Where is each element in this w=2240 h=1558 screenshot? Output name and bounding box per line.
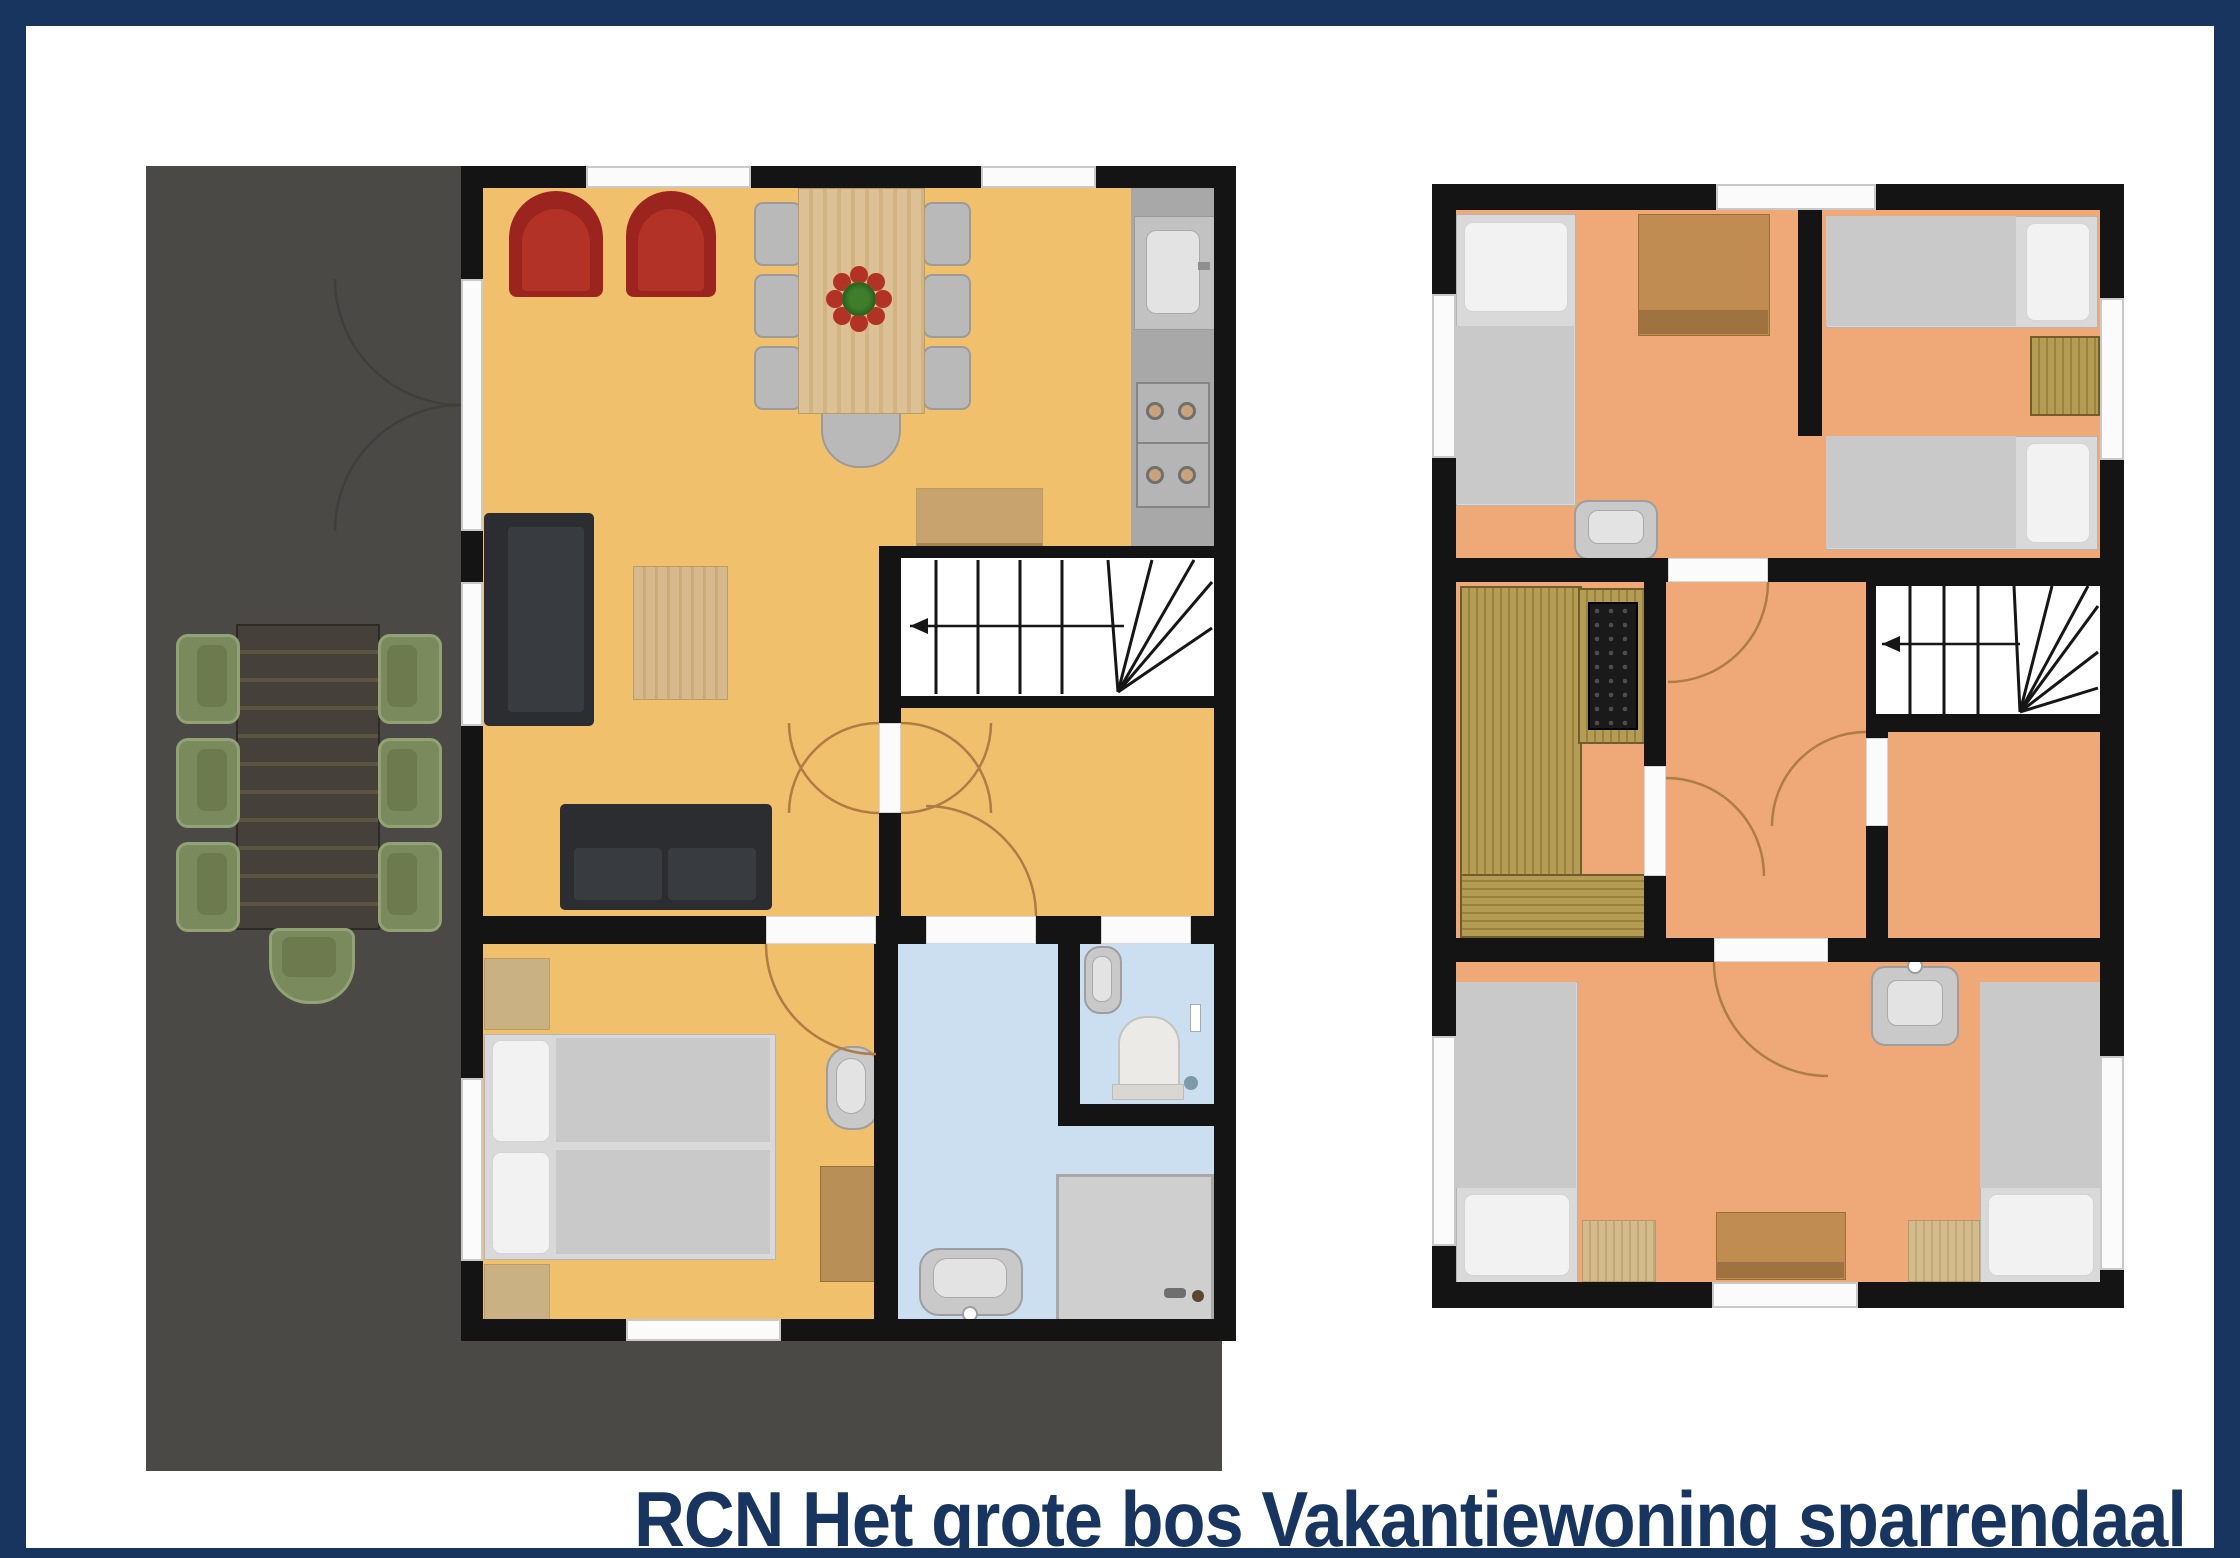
stair-direction-arrow	[910, 618, 928, 634]
stair-winder	[2020, 586, 2052, 712]
door-arc	[901, 723, 991, 813]
stair-winder	[2020, 606, 2098, 712]
stair-direction-arrow	[1882, 636, 1900, 652]
door-arc	[789, 723, 879, 813]
stair-winder	[2014, 586, 2020, 712]
door-arc	[335, 405, 461, 531]
door-arc	[901, 723, 991, 813]
caption-title: RCN Het grote bos Vakantiewoning sparren…	[242, 1474, 2186, 1558]
stairs-upper-treads	[1882, 586, 2098, 714]
door-arc	[335, 279, 461, 405]
terrace-door-arcs	[335, 279, 461, 531]
interior-door-arcs	[766, 582, 1866, 1076]
door-arc	[789, 723, 879, 813]
stair-winder	[1118, 560, 1194, 692]
door-arc	[1772, 732, 1866, 826]
floorplan-canvas: RCN Het grote bos Vakantiewoning sparren…	[0, 0, 2240, 1558]
stairs-ground-treads	[910, 560, 1212, 694]
door-arc	[766, 944, 876, 1054]
door-arc	[1666, 778, 1764, 876]
door-arc	[1668, 582, 1768, 682]
linework-overlay	[26, 26, 2240, 1558]
door-arc	[1714, 962, 1828, 1076]
door-arc	[926, 806, 1036, 916]
